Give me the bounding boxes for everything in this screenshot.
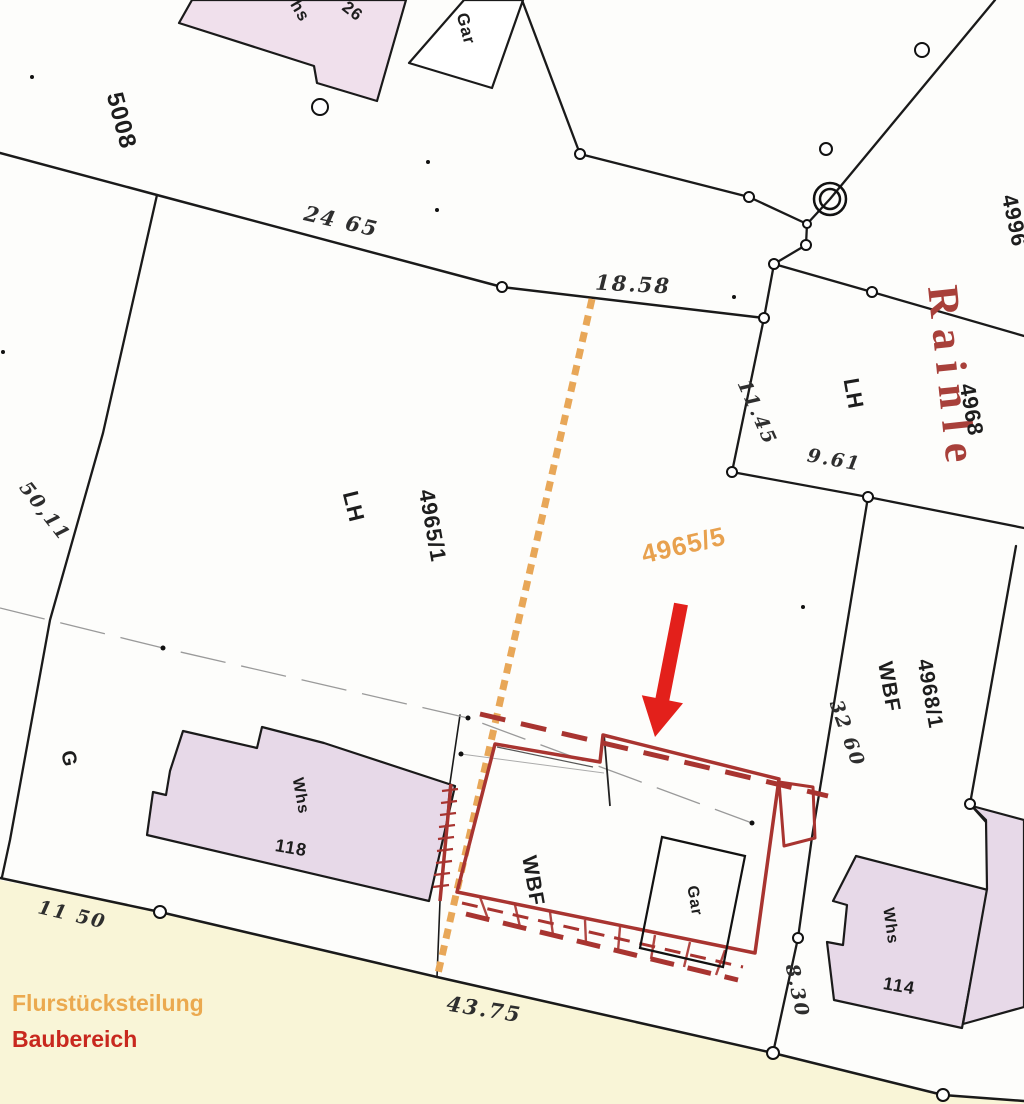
legend-build-area-label: Baubereich (12, 1026, 137, 1052)
boundary-gar-line (522, 0, 807, 224)
label-lh-main: LH (338, 488, 370, 524)
measure-50-11: 50,11 (15, 477, 75, 545)
boundary-4968-1-east (970, 546, 1016, 804)
measure-18-58: 18.58 (595, 270, 672, 299)
location-arrow (642, 603, 688, 737)
boundary-connector (764, 264, 774, 318)
label-wbf-east: WBF (873, 660, 904, 714)
measure-8-30: 8.30 (780, 961, 813, 1020)
boundary-west (2, 195, 157, 877)
label-gar-build-area: Gar (683, 884, 705, 917)
boundary-street-rainle (774, 264, 1024, 336)
legend-division-label: Flurstücksteilung (12, 990, 204, 1016)
map-svg: 5008 Whs 26 Gar 24 65 18.58 4996 Rainle … (0, 0, 1024, 1104)
label-parcel-4996: 4996 (997, 192, 1024, 249)
street-name-rainle: Rainle (918, 283, 986, 475)
label-g: G (56, 749, 81, 769)
point-dots (1, 75, 805, 826)
label-parcel-4968-1: 4968/1 (913, 657, 948, 730)
build-area-dashed-bottom (466, 914, 738, 980)
cadastral-map: 5008 Whs 26 Gar 24 65 18.58 4996 Rainle … (0, 0, 1024, 1104)
label-wbf-build-area: WBF (517, 854, 548, 908)
building-whs-114 (827, 856, 988, 1028)
boundary-9-61 (732, 472, 1024, 528)
measure-9-61: 9.61 (806, 444, 863, 475)
build-area-outline (457, 735, 779, 953)
label-parcel-4965-1: 4965/1 (414, 487, 451, 564)
label-parcel-5008: 5008 (101, 89, 142, 151)
measure-32-60: 32 60 (825, 697, 869, 770)
label-lh-east: LH (839, 376, 869, 411)
label-parcel-4965-5: 4965/5 (638, 521, 728, 569)
